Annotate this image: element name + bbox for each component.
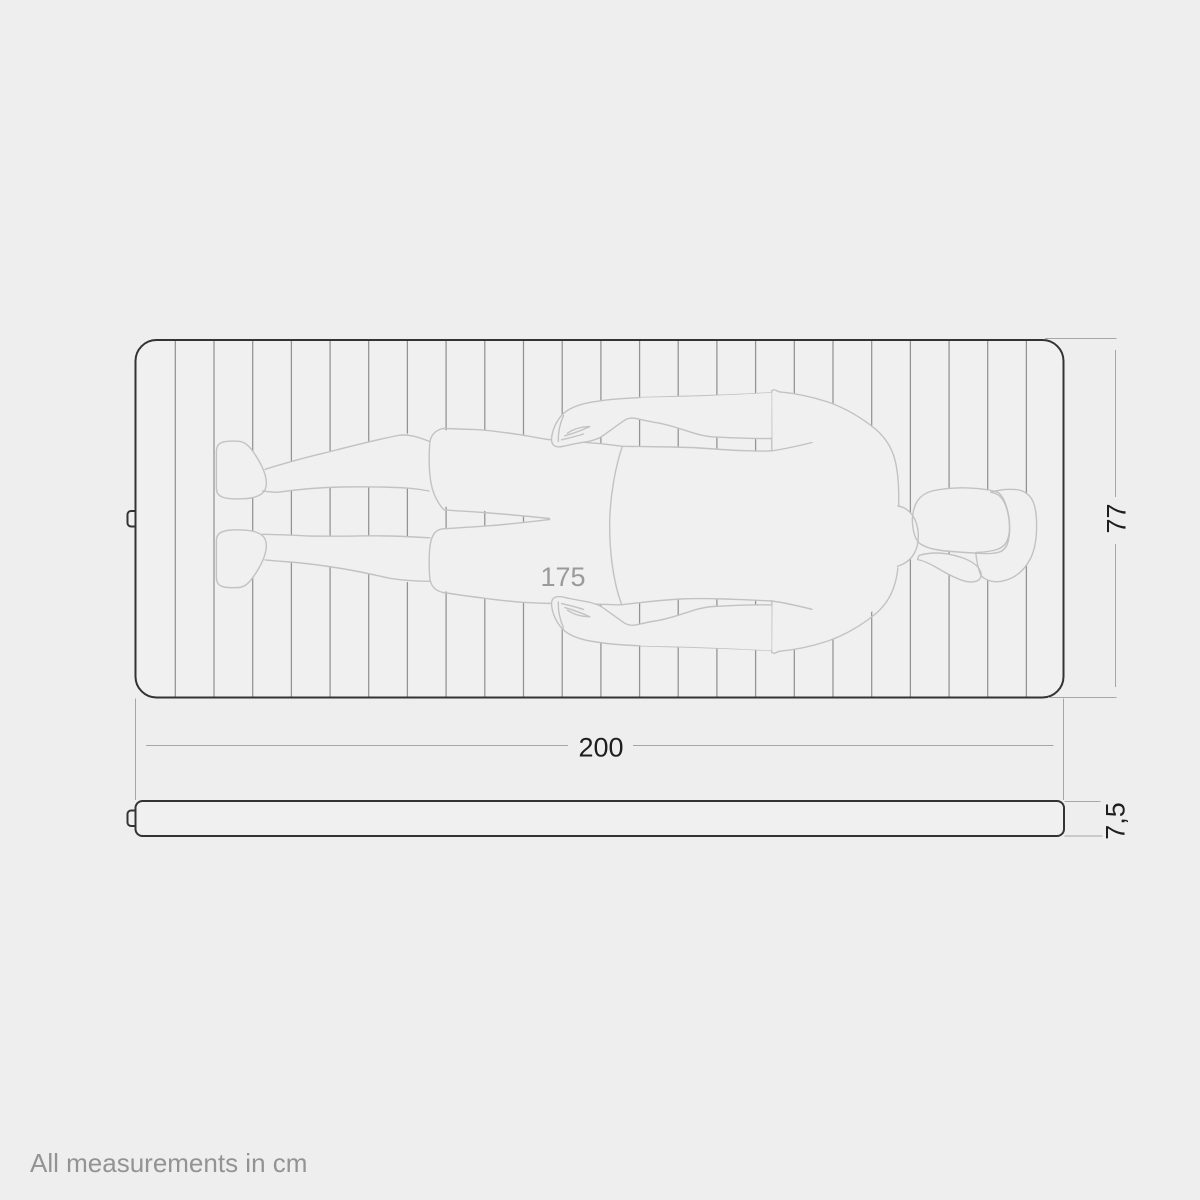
svg-text:200: 200 (578, 733, 623, 763)
svg-text:175: 175 (540, 562, 585, 592)
svg-text:7,5: 7,5 (1101, 802, 1131, 840)
svg-text:77: 77 (1102, 503, 1132, 533)
svg-text:All measurements in cm: All measurements in cm (30, 1148, 307, 1178)
